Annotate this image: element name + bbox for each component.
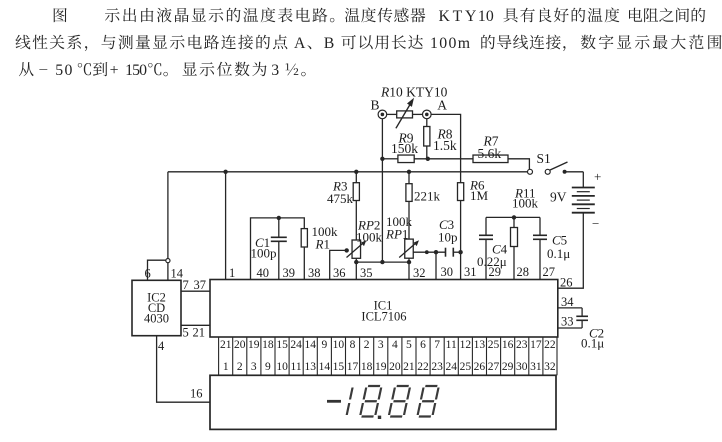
svg-text:23: 23 <box>431 361 443 373</box>
svg-text:5: 5 <box>183 326 189 340</box>
svg-text:22: 22 <box>544 339 556 351</box>
svg-text:5: 5 <box>406 339 412 351</box>
svg-text:11: 11 <box>446 339 457 351</box>
svg-text:100k: 100k <box>512 196 539 211</box>
svg-text:26: 26 <box>474 361 486 373</box>
svg-text:15: 15 <box>333 361 345 373</box>
svg-text:9: 9 <box>265 361 271 373</box>
svg-text:14: 14 <box>304 339 316 351</box>
svg-text:16: 16 <box>190 387 203 401</box>
svg-text:−: − <box>592 216 599 231</box>
svg-text:34: 34 <box>561 295 574 309</box>
svg-text:25: 25 <box>488 339 500 351</box>
svg-text:38: 38 <box>308 266 321 280</box>
svg-text:31: 31 <box>530 361 542 373</box>
svg-text:100p: 100p <box>251 246 277 261</box>
svg-text:28: 28 <box>517 265 530 279</box>
svg-text:9V: 9V <box>550 190 567 205</box>
svg-text:S1: S1 <box>537 151 551 166</box>
svg-text:150k: 150k <box>391 141 418 156</box>
svg-text:ICL7106: ICL7106 <box>361 309 406 323</box>
svg-text:4: 4 <box>392 339 398 351</box>
svg-text:3: 3 <box>251 361 257 373</box>
svg-text:25: 25 <box>460 361 472 373</box>
svg-text:14: 14 <box>319 361 331 373</box>
svg-text:3: 3 <box>378 339 384 351</box>
svg-text:4030: 4030 <box>144 311 169 325</box>
svg-text:11: 11 <box>291 361 302 373</box>
svg-text:1.5k: 1.5k <box>433 138 457 153</box>
svg-text:22: 22 <box>417 361 429 373</box>
svg-text:16: 16 <box>502 339 514 351</box>
svg-text:21: 21 <box>193 326 206 340</box>
svg-text:0.1μ: 0.1μ <box>581 336 604 351</box>
svg-text:1: 1 <box>229 266 235 280</box>
svg-text:20: 20 <box>234 339 246 351</box>
svg-text:10: 10 <box>333 339 345 351</box>
svg-text:37: 37 <box>194 278 207 292</box>
svg-text:6: 6 <box>420 339 426 351</box>
svg-text:8: 8 <box>350 339 356 351</box>
svg-text:19: 19 <box>248 339 260 351</box>
svg-text:7: 7 <box>434 339 440 351</box>
svg-text:R1: R1 <box>315 237 330 252</box>
svg-text:15: 15 <box>276 339 288 351</box>
svg-text:18: 18 <box>262 339 274 351</box>
svg-text:10: 10 <box>276 361 288 373</box>
svg-text:23: 23 <box>516 339 528 351</box>
svg-text:30: 30 <box>516 361 528 373</box>
svg-text:475k: 475k <box>327 191 354 206</box>
svg-text:18: 18 <box>361 361 373 373</box>
svg-text:19: 19 <box>375 361 387 373</box>
svg-text:39: 39 <box>283 266 296 280</box>
svg-text:32: 32 <box>413 266 426 280</box>
svg-text:221k: 221k <box>414 189 441 204</box>
svg-text:17: 17 <box>347 361 359 373</box>
svg-text:12: 12 <box>460 339 472 351</box>
svg-text:10p: 10p <box>438 230 458 245</box>
svg-text:27: 27 <box>488 361 500 373</box>
svg-text:20: 20 <box>389 361 401 373</box>
svg-text:26: 26 <box>560 276 573 290</box>
svg-text:B: B <box>371 97 380 112</box>
svg-text:5.6k: 5.6k <box>478 146 502 161</box>
svg-text:32: 32 <box>544 361 556 373</box>
svg-text:6: 6 <box>145 267 151 281</box>
svg-text:29: 29 <box>489 265 502 279</box>
svg-text:31: 31 <box>464 265 477 279</box>
svg-text:2: 2 <box>364 339 370 351</box>
svg-text:9: 9 <box>322 339 328 351</box>
svg-text:4: 4 <box>158 339 165 353</box>
svg-text:1: 1 <box>223 361 229 373</box>
svg-text:35: 35 <box>360 266 373 280</box>
svg-text:A: A <box>437 97 447 112</box>
svg-text:36: 36 <box>333 266 346 280</box>
svg-text:0.1μ: 0.1μ <box>547 246 570 261</box>
svg-text:21: 21 <box>403 361 415 373</box>
svg-text:40: 40 <box>257 266 270 280</box>
svg-text:7: 7 <box>183 278 189 292</box>
svg-text:2: 2 <box>237 361 243 373</box>
svg-text:13: 13 <box>304 361 316 373</box>
svg-text:+: + <box>594 169 601 184</box>
svg-text:13: 13 <box>474 339 486 351</box>
svg-text:24: 24 <box>445 361 457 373</box>
svg-text:17: 17 <box>530 339 542 351</box>
svg-text:24: 24 <box>290 339 302 351</box>
svg-text:33: 33 <box>561 315 574 329</box>
svg-text:1M: 1M <box>470 188 489 203</box>
svg-text:29: 29 <box>502 361 514 373</box>
svg-text:21: 21 <box>220 339 232 351</box>
svg-text:30: 30 <box>441 265 454 279</box>
svg-text:27: 27 <box>543 265 556 279</box>
